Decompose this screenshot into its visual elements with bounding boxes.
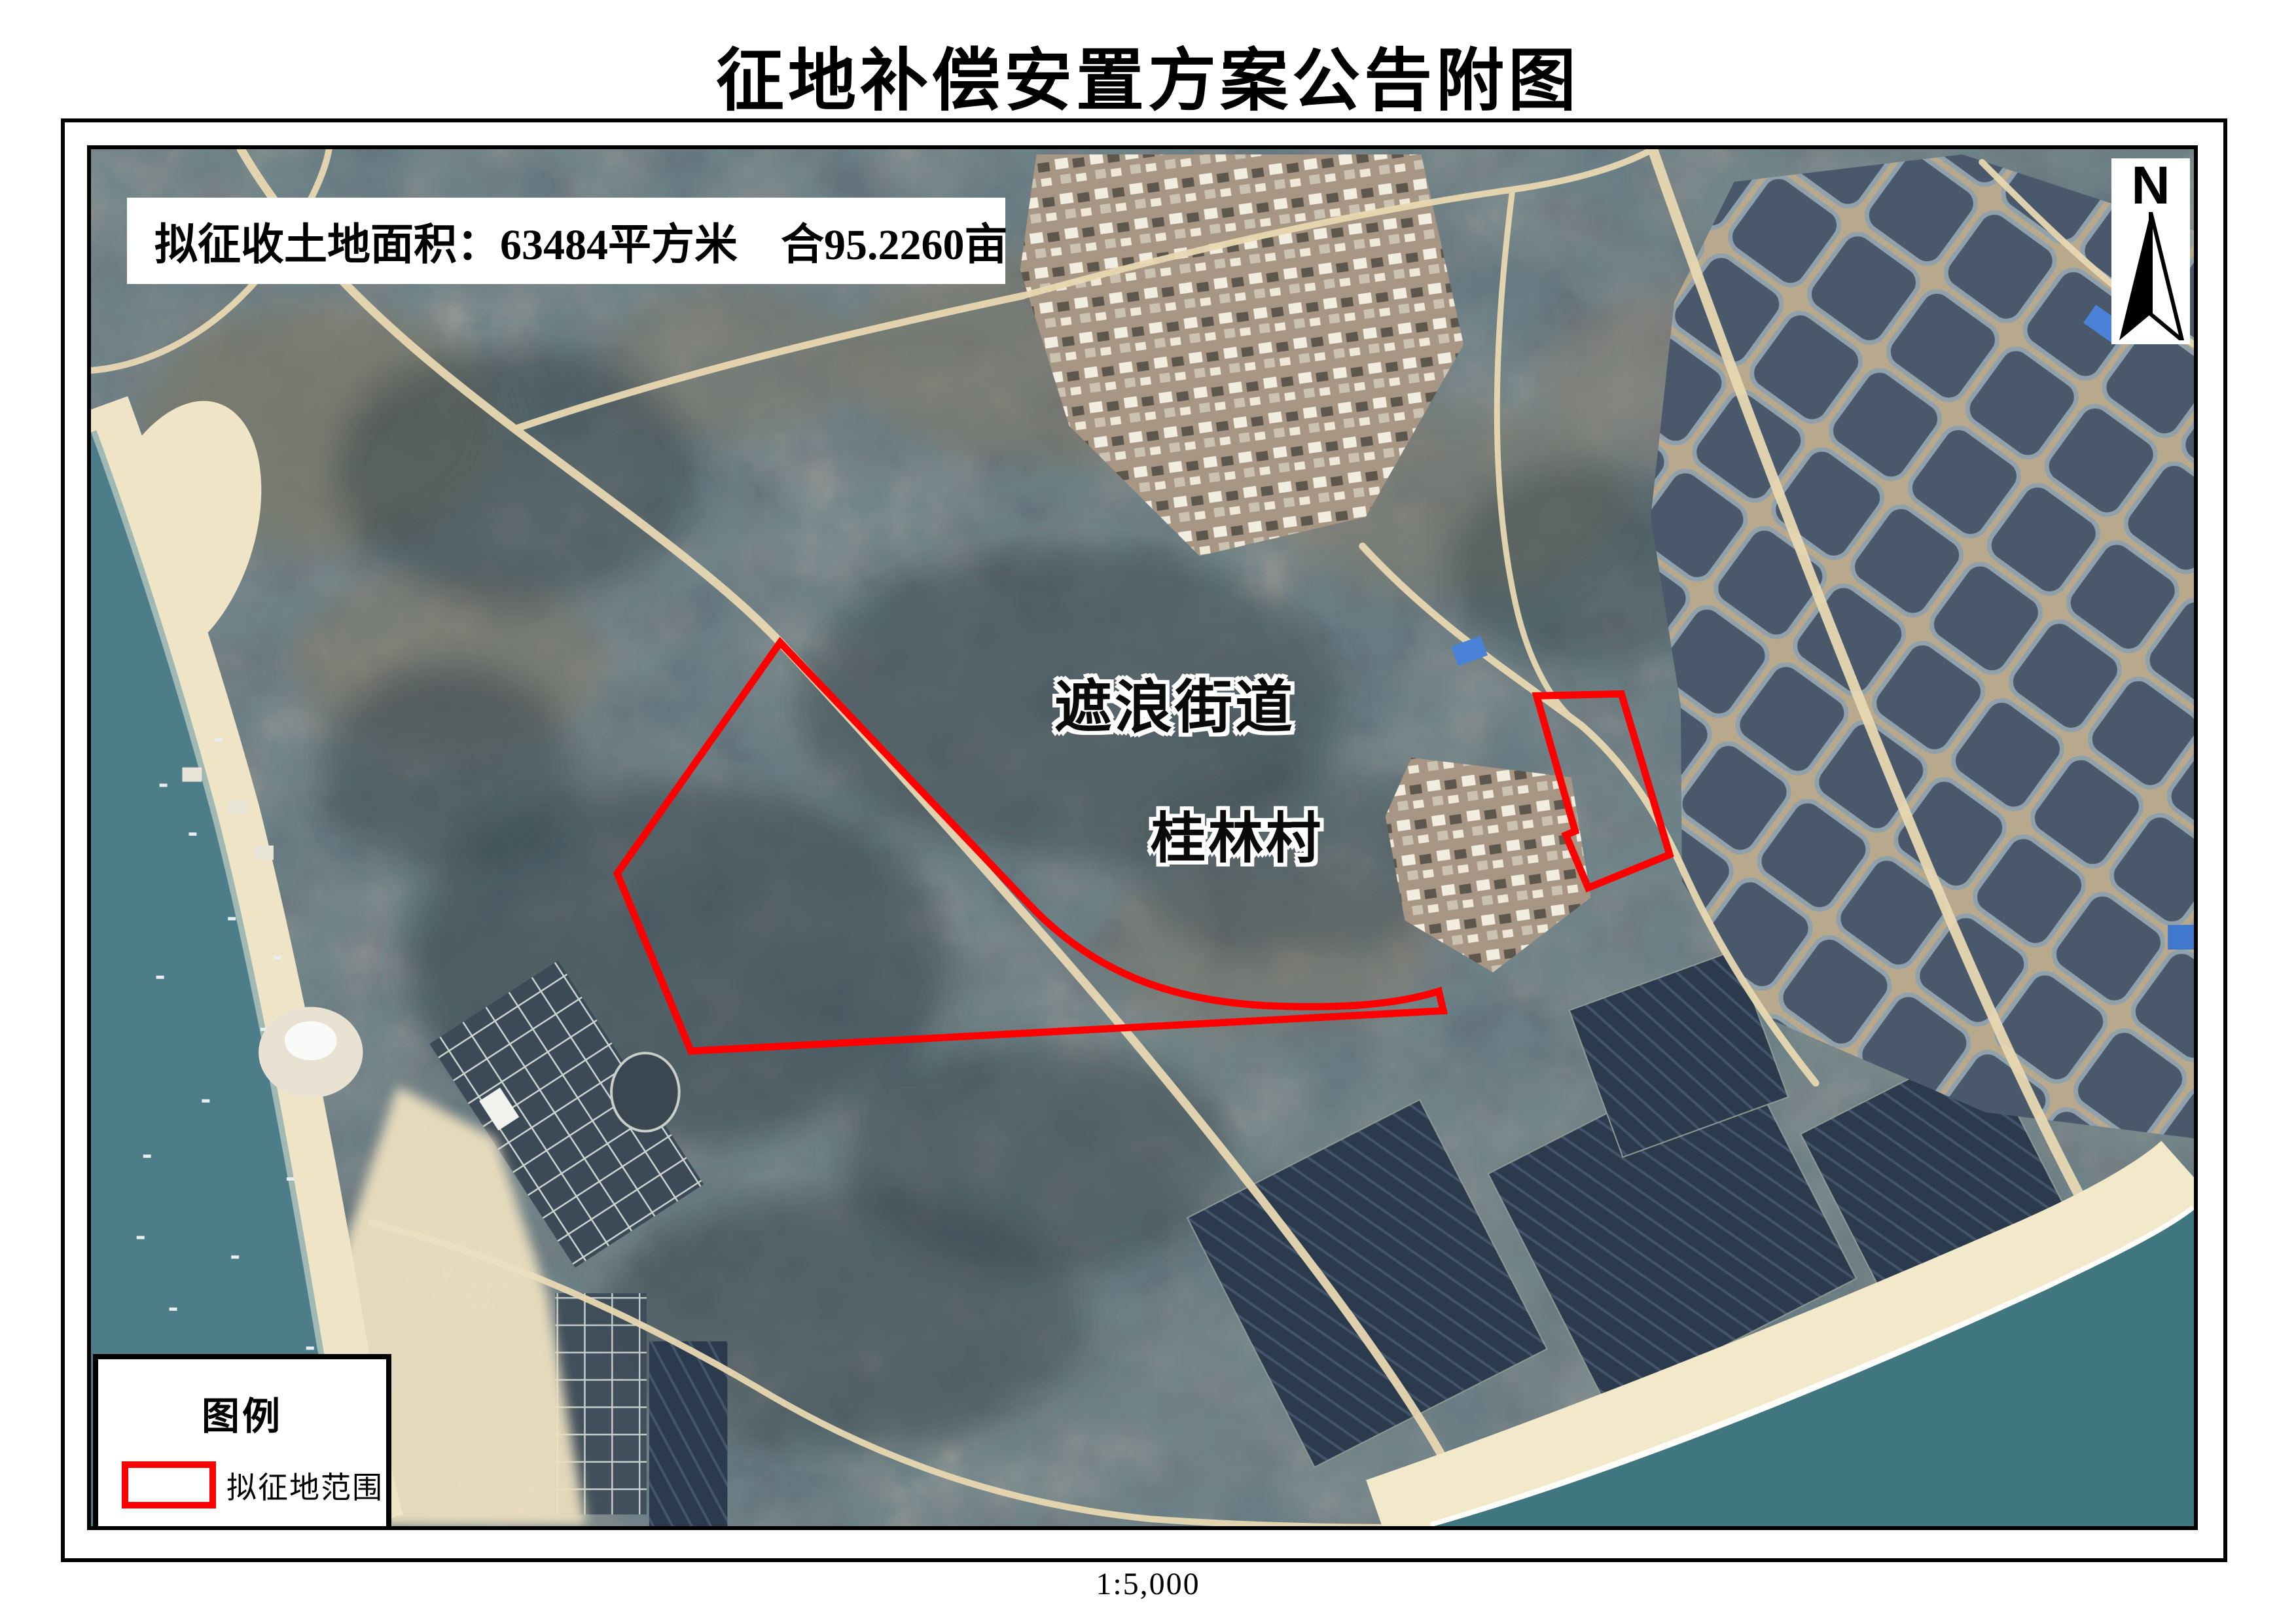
north-label: N — [2111, 160, 2190, 212]
map-scale: 1:5,000 — [0, 1566, 2296, 1602]
satellite-imagery — [91, 149, 2194, 1526]
village-place-label: 桂林村 — [1151, 794, 1323, 874]
area-info-box: 拟征收土地面积：63484平方米 合95.2260亩 — [127, 198, 1005, 284]
legend-item-label: 拟征地范围 — [226, 1464, 384, 1507]
legend-title: 图例 — [98, 1385, 386, 1440]
page-title: 征地补偿安置方案公告附图 — [0, 25, 2296, 124]
satellite-map: 拟征收土地面积：63484平方米 合95.2260亩 N 遮浪街道 桂林村 图例… — [87, 145, 2198, 1530]
acquisition-area-swatch — [122, 1461, 216, 1508]
north-arrow: N — [2111, 158, 2190, 344]
legend-item: 拟征地范围 — [98, 1457, 386, 1510]
announcement-page: { "title": "征地补偿安置方案公告附图", "map": { "inf… — [0, 0, 2296, 1623]
north-arrow-icon — [2116, 212, 2185, 340]
area-info-text: 拟征收土地面积：63484平方米 合95.2260亩 — [154, 209, 1008, 272]
legend: 图例 拟征地范围 — [93, 1354, 391, 1530]
street-place-label: 遮浪街道 — [1054, 661, 1295, 744]
